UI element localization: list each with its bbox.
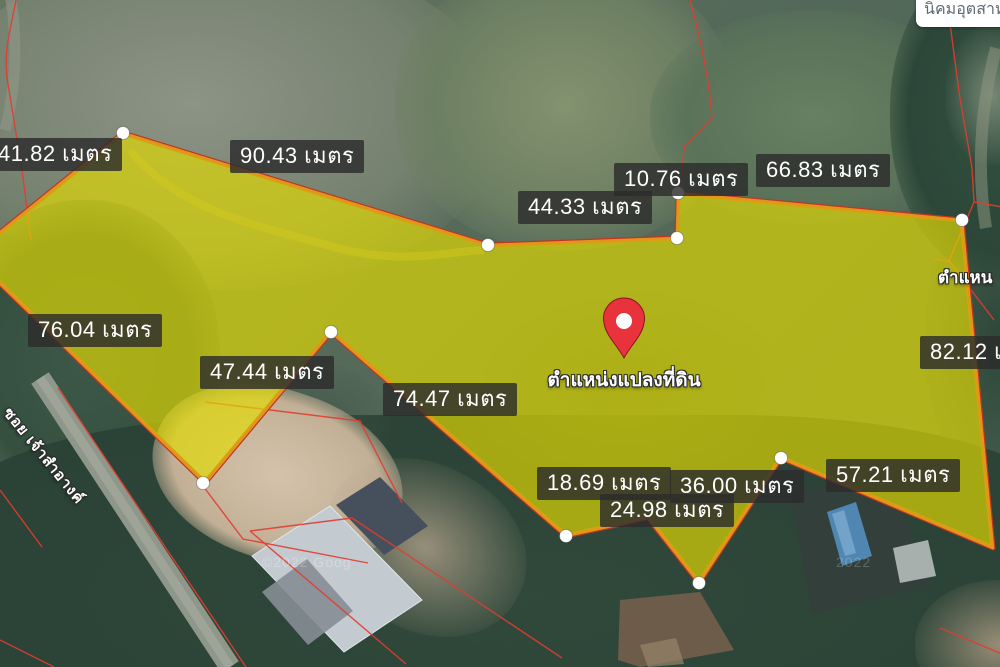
place-name-text: นิคมอุตสาห xyxy=(924,0,1000,22)
vertex-dot xyxy=(197,477,210,490)
measurement-label: 90.43 เมตร xyxy=(230,140,364,173)
satellite-map-view: 41.82 เมตร 90.43 เมตร 44.33 เมตร 10.76 เ… xyxy=(0,0,1000,667)
measurement-label: 47.44 เมตร xyxy=(200,356,334,389)
measurement-label: 66.83 เมตร xyxy=(756,154,890,187)
place-name-label: นิคมอุตสาห xyxy=(916,0,1000,27)
imagery-watermark-right: 2022 xyxy=(836,554,871,570)
measurement-label: 82.12 เมตร xyxy=(920,336,1000,369)
measurement-label: 57.21 เมตร xyxy=(826,459,960,492)
vertex-dot xyxy=(560,530,573,543)
vertex-dot xyxy=(482,239,495,252)
measurement-label: 76.04 เมตร xyxy=(28,314,162,347)
track-right xyxy=(981,48,996,228)
vertex-dot xyxy=(325,326,338,339)
vertex-dot xyxy=(956,214,969,227)
measurement-label: 10.76 เมตร xyxy=(614,163,748,196)
measurement-label: 74.47 เมตร xyxy=(383,383,517,416)
vertex-dot xyxy=(693,577,706,590)
measurement-label: 41.82 เมตร xyxy=(0,138,122,171)
measurement-label: 24.98 เมตร xyxy=(600,494,734,527)
vertex-dot xyxy=(775,452,788,465)
imagery-watermark: ©2022 Goog xyxy=(262,554,352,570)
right-edge-partial-label: ตำแหน xyxy=(938,264,992,291)
vertex-dot xyxy=(671,232,684,245)
pin-caption: ตำแหน่งแปลงที่ดิน xyxy=(547,365,700,395)
